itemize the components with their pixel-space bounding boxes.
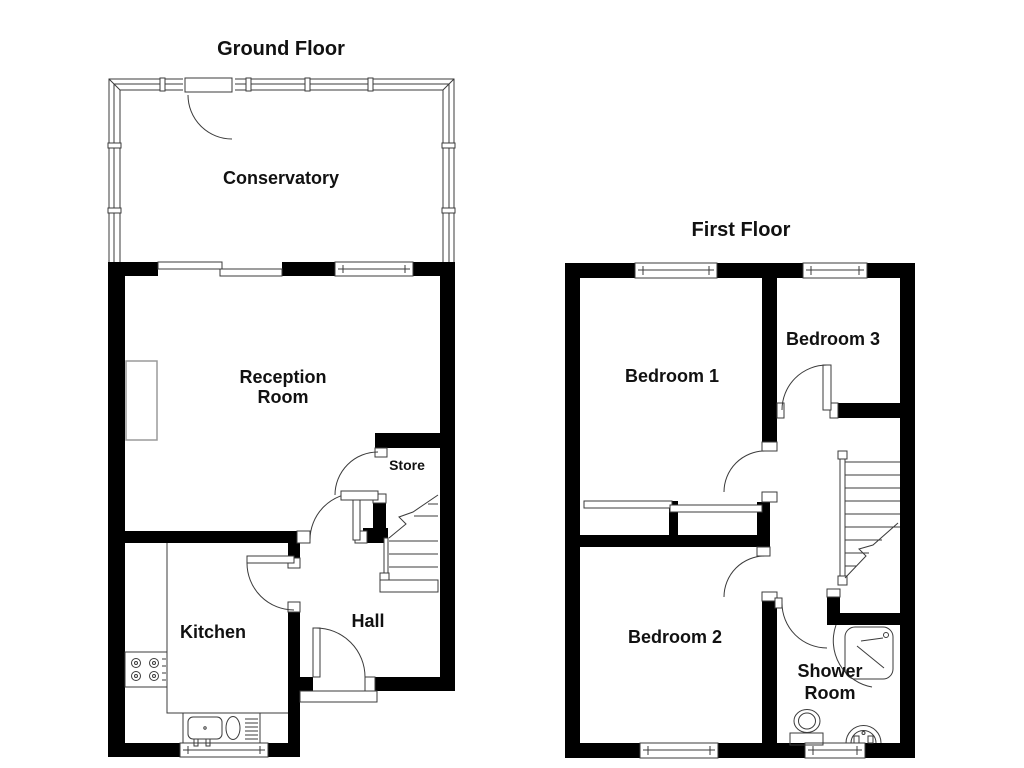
store-door — [335, 452, 378, 500]
mullion-icon — [442, 208, 455, 213]
mullion-icon — [246, 78, 251, 91]
store-label: Store — [389, 457, 425, 473]
mullion-icon — [160, 78, 165, 91]
floorplan-canvas: Ground Floor — [0, 0, 1024, 768]
shower-room-label-line2: Room — [805, 683, 856, 703]
chimney-breast — [126, 361, 157, 440]
bedroom1-door — [724, 451, 765, 492]
mullion-icon — [442, 143, 455, 148]
conservatory-door — [183, 76, 235, 139]
shower-room-door — [782, 603, 827, 648]
kitchen-label: Kitchen — [180, 622, 246, 642]
bedroom3-label: Bedroom 3 — [786, 329, 880, 349]
shower-room-label-line1: Shower — [797, 661, 862, 681]
sink-unit — [183, 713, 260, 746]
bedroom3-door — [782, 365, 831, 410]
ground-floor-title: Ground Floor — [217, 38, 345, 60]
toilet — [790, 710, 823, 746]
conservatory-label: Conservatory — [223, 168, 339, 188]
bedroom1-label: Bedroom 1 — [625, 366, 719, 386]
reception-room-label-line2: Room — [258, 387, 309, 407]
front-step — [300, 691, 377, 702]
hob — [125, 652, 167, 687]
kitchen-door — [247, 556, 294, 610]
reception-window — [335, 262, 413, 276]
mullion-icon — [108, 143, 121, 148]
ground-floor-plan: Ground Floor — [108, 38, 455, 757]
door-jambs — [288, 448, 387, 691]
bedroom2-window — [640, 743, 718, 758]
bedroom2-label: Bedroom 2 — [628, 627, 722, 647]
mullion-icon — [108, 208, 121, 213]
patio-sliding-doors — [158, 262, 282, 276]
reception-room-label-line1: Reception — [239, 367, 326, 387]
first-floor-plan: First Floor — [565, 219, 915, 758]
mullion-icon — [368, 78, 373, 91]
bedroom1-window — [635, 263, 717, 278]
first-floor-stairs — [838, 451, 900, 585]
front-door — [300, 628, 377, 702]
ground-floor-stairs — [380, 495, 438, 592]
kitchen-window — [180, 743, 268, 757]
bedroom2-door — [724, 556, 765, 597]
bedroom3-window — [803, 263, 867, 278]
hall-label: Hall — [351, 611, 384, 631]
first-floor-title: First Floor — [692, 219, 791, 241]
mullion-icon — [305, 78, 310, 91]
wash-basin — [846, 726, 881, 744]
stair-break-line — [845, 523, 898, 578]
